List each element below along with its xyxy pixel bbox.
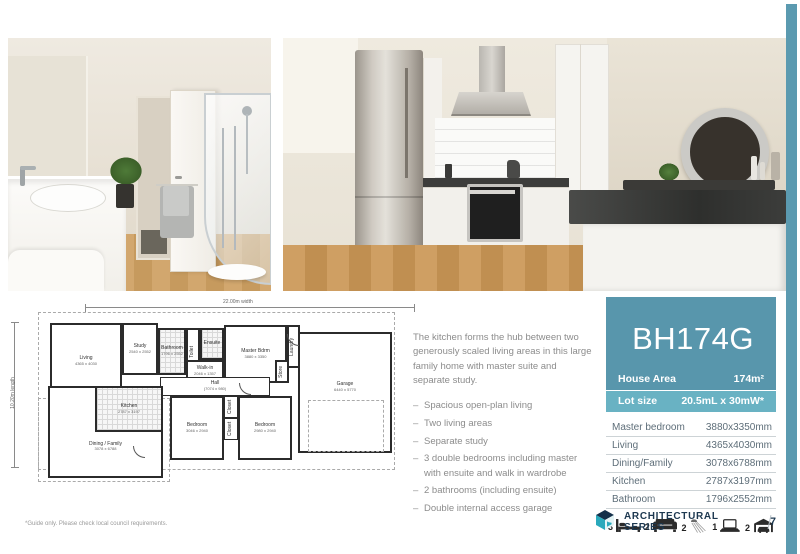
shower-tray bbox=[208, 264, 266, 280]
row-value: 3078x6788mm bbox=[706, 458, 772, 469]
length-dimension-label: 10.20m length bbox=[10, 377, 16, 409]
row-value: 3880x3350mm bbox=[706, 422, 772, 433]
row-label: Living bbox=[612, 440, 638, 451]
faucet-spout bbox=[20, 166, 36, 170]
row-label: Dining/Family bbox=[612, 458, 673, 469]
row-value: 4365x4030mm bbox=[706, 440, 772, 451]
fridge-split bbox=[355, 196, 423, 198]
model-code-panel: BH174G House Area 174m² Lot size 20.5mL … bbox=[606, 297, 776, 412]
basin bbox=[30, 184, 106, 212]
candle-holder bbox=[771, 152, 780, 180]
island-benchtop bbox=[569, 190, 786, 224]
accent-stripe bbox=[786, 4, 797, 554]
kitchen-photo bbox=[283, 38, 786, 291]
room-ensuite: Ensuite bbox=[200, 328, 224, 360]
feature-item: Two living areas bbox=[413, 417, 595, 431]
row-label: Kitchen bbox=[612, 476, 645, 487]
bathroom-photo bbox=[8, 38, 271, 291]
width-dimension-label: 22.00m width bbox=[223, 299, 253, 305]
room-bathroom: Bathroom 1796 x 2552 bbox=[158, 328, 186, 375]
room-store: Store bbox=[275, 360, 289, 383]
table-row: Dining/Family 3078x6788mm bbox=[606, 455, 776, 473]
window-light bbox=[283, 38, 358, 153]
feature-item: Double internal access garage bbox=[413, 502, 595, 516]
footnote: *Guide only. Please check local council … bbox=[25, 521, 167, 527]
splashback-tiles bbox=[435, 118, 563, 178]
room-bedroom-2: Bedroom 3046 x 2940 bbox=[170, 396, 224, 460]
feature-item: Spacious open-plan living bbox=[413, 399, 595, 413]
garage-door-zone bbox=[308, 400, 384, 452]
range-hood bbox=[451, 92, 531, 116]
table-row: Bathroom 1796x2552mm bbox=[606, 491, 776, 509]
room-kitchen: Kitchen 2787 x 3197 bbox=[95, 386, 163, 432]
brand-name: ARCHITECTURAL SERIES bbox=[624, 511, 761, 533]
towel-pile bbox=[8, 250, 104, 291]
shower-rod bbox=[246, 114, 248, 174]
description-intro: The kitchen forms the hub between two ge… bbox=[413, 331, 595, 388]
lot-size-label: Lot size bbox=[618, 395, 657, 407]
row-label: Bathroom bbox=[612, 494, 655, 505]
hood-chimney bbox=[479, 46, 505, 94]
oven-handle bbox=[469, 190, 515, 194]
lot-size-value: 20.5mL x 30mW* bbox=[681, 395, 764, 407]
canister bbox=[445, 164, 452, 178]
room-bedroom-3: Bedroom 2980 x 2940 bbox=[238, 396, 292, 460]
console-shelf bbox=[623, 180, 775, 190]
brand-logo bbox=[594, 509, 616, 536]
fridge-handle bbox=[405, 68, 408, 178]
house-area-label: House Area bbox=[618, 373, 676, 385]
feature-item: 2 bathrooms (including ensuite) bbox=[413, 484, 595, 498]
model-code: BH174G bbox=[606, 297, 776, 369]
row-value: 1796x2552mm bbox=[706, 494, 772, 505]
width-dimension-line bbox=[85, 307, 415, 308]
floor-plan: 22.00m width 10.20m length Living 4365 x… bbox=[25, 298, 400, 498]
shower-handle bbox=[234, 126, 236, 250]
plant-pot bbox=[116, 184, 134, 208]
table-row: Kitchen 2787x3197mm bbox=[606, 473, 776, 491]
table-row: Living 4365x4030mm bbox=[606, 437, 776, 455]
vase bbox=[751, 156, 757, 180]
brochure-page: 22.00m width 10.20m length Living 4365 x… bbox=[0, 0, 800, 554]
feature-item: Separate study bbox=[413, 435, 595, 449]
shower-handle bbox=[222, 128, 224, 248]
closet: Closet bbox=[224, 418, 238, 440]
feature-list: Spacious open-plan living Two living are… bbox=[413, 399, 595, 516]
description-block: The kitchen forms the hub between two ge… bbox=[413, 331, 595, 520]
vase bbox=[760, 162, 765, 180]
table-row: Master bedroom 3880x3350mm bbox=[606, 419, 776, 437]
feature-item: 3 double bedrooms including master with … bbox=[413, 452, 595, 481]
cabinet-seam bbox=[580, 44, 581, 204]
house-area-row: House Area 174m² bbox=[606, 369, 776, 390]
model-panel: BH174G House Area 174m² Lot size 20.5mL … bbox=[606, 297, 776, 533]
room-hall: Hall (7074 x 980) bbox=[160, 377, 270, 396]
row-label: Master bedroom bbox=[612, 422, 685, 433]
kettle bbox=[507, 160, 520, 178]
footer: ARCHITECTURAL SERIES 7 bbox=[594, 509, 776, 535]
closet: Closet bbox=[224, 396, 238, 418]
house-area-value: 174m² bbox=[734, 373, 764, 385]
lot-size-row: Lot size 20.5mL x 30mW* bbox=[606, 390, 776, 412]
wood-floor bbox=[283, 245, 593, 291]
towel-top bbox=[163, 186, 189, 216]
island-base bbox=[583, 224, 786, 291]
room-study: Study 2540 x 2552 bbox=[122, 323, 158, 375]
door-handle bbox=[175, 176, 182, 179]
row-value: 2787x3197mm bbox=[706, 476, 772, 487]
room-dimensions-table: Master bedroom 3880x3350mm Living 4365x4… bbox=[606, 419, 776, 509]
